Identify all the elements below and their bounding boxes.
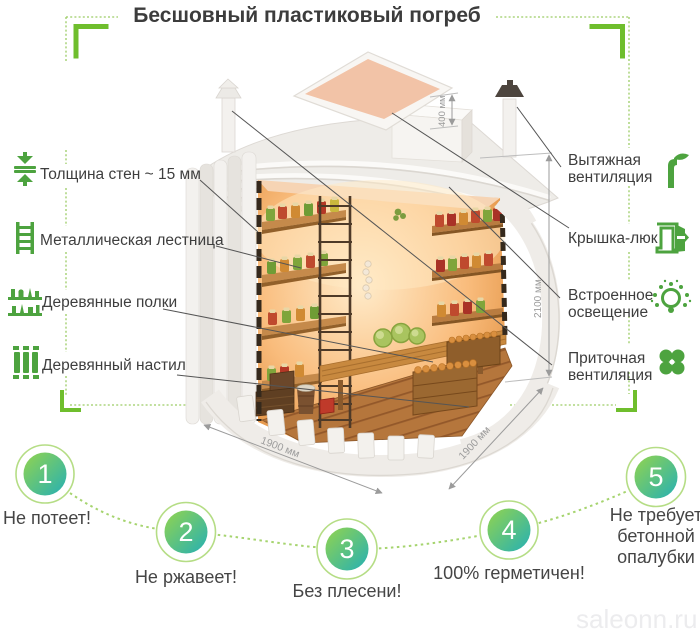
infographic-plastic-cellar: 400 мм 2100 мм 1900 мм 1900 мм <box>0 0 700 640</box>
feature-wooden-shelves: Деревянные полки <box>42 294 177 312</box>
benefit-number-3: 3 <box>325 534 369 565</box>
benefit-label-1: Не потеет! <box>2 508 92 529</box>
hatch-icon <box>655 222 689 259</box>
benefit-number-1: 1 <box>23 459 67 490</box>
benefit-label-3: Без плесени! <box>291 581 403 602</box>
feature-exhaust-vent: Вытяжная вентиляция <box>568 152 652 186</box>
benefit-label-4: 100% герметичен! <box>424 563 594 584</box>
benefit-number-4: 4 <box>487 515 531 546</box>
flooring-icon <box>12 346 40 385</box>
exhaust-pipe <box>495 80 524 157</box>
page-title: Бесшовный пластиковый погреб <box>107 4 507 28</box>
dimension-2100-label: 2100 мм <box>533 279 544 318</box>
dimension-400-label: 400 мм <box>437 95 448 127</box>
light-icon <box>650 278 692 325</box>
feature-built-in-light: Встроенное освещение <box>568 287 653 321</box>
watermark: saleonn.ru <box>576 604 697 635</box>
benefit-label-5: Не требует бетонной опалубки <box>600 505 700 568</box>
cellar-illustration <box>186 52 559 475</box>
cellar-left-wall <box>186 152 256 424</box>
ladder-icon <box>13 222 37 259</box>
feature-supply-vent: Приточная вентиляция <box>568 350 652 384</box>
feature-metal-ladder: Металлическая лестница <box>40 232 224 250</box>
exhaust-vent-icon <box>660 150 690 193</box>
benefit-number-2: 2 <box>164 517 208 548</box>
supply-vent-icon <box>657 345 687 384</box>
feature-hatch-cover: Крышка-люк <box>568 230 658 247</box>
shelves-icon <box>8 285 42 322</box>
feature-wall-thickness: Толщина стен ~ 15 мм <box>40 166 201 184</box>
benefit-label-2: Не ржавеет! <box>131 567 241 588</box>
benefit-number-5: 5 <box>634 462 678 493</box>
wall-thickness-icon <box>12 152 38 191</box>
feature-wooden-flooring: Деревянный настил <box>42 357 186 375</box>
red-crate <box>320 398 334 414</box>
